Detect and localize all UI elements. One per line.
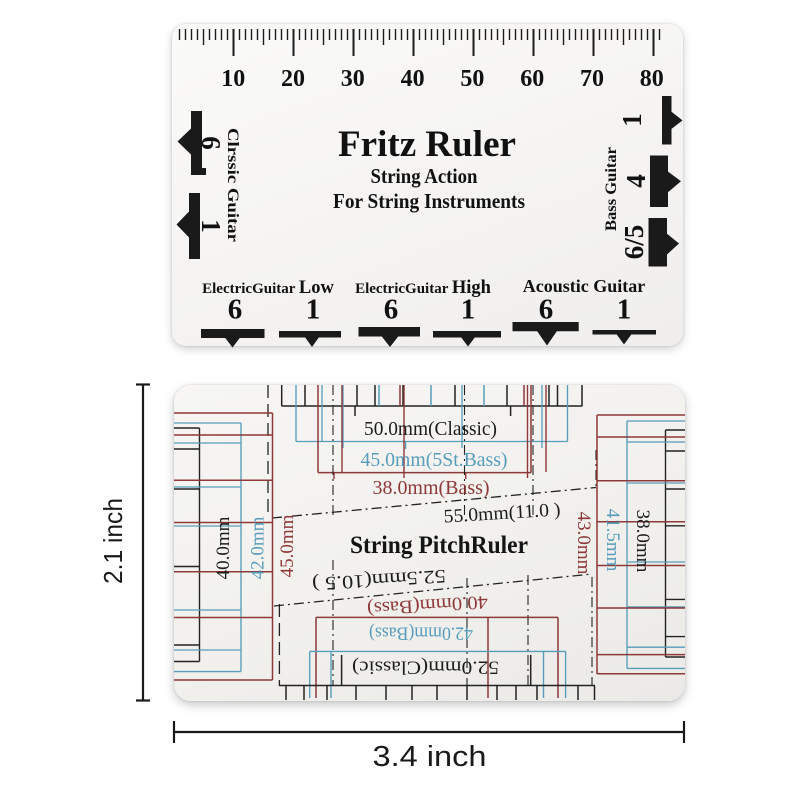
- svg-text:2.1 inch: 2.1 inch: [98, 498, 128, 584]
- svg-text:3.4 inch: 3.4 inch: [373, 741, 487, 773]
